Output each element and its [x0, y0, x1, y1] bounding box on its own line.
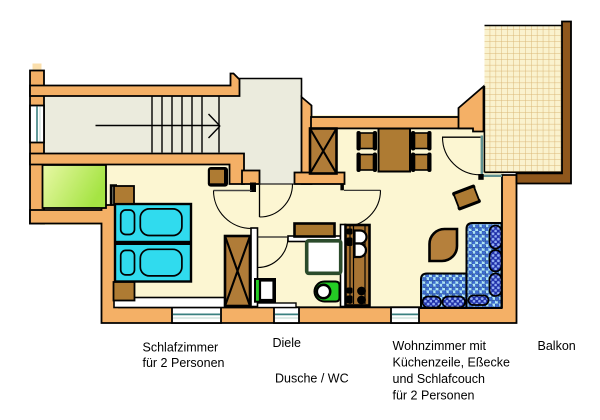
svg-text:Schlafzimmer: Schlafzimmer	[143, 341, 219, 355]
svg-text:für 2 Personen: für 2 Personen	[143, 356, 225, 370]
svg-text:und Schlafcouch: und Schlafcouch	[393, 372, 485, 386]
svg-text:Küchenzeile, Eßecke: Küchenzeile, Eßecke	[393, 356, 510, 370]
svg-text:für 2 Personen: für 2 Personen	[393, 389, 475, 403]
svg-text:Dusche / WC: Dusche / WC	[275, 372, 349, 386]
svg-text:Wohnzimmer mit: Wohnzimmer mit	[393, 339, 487, 353]
svg-text:Balkon: Balkon	[538, 339, 576, 353]
svg-text:Diele: Diele	[273, 336, 302, 350]
